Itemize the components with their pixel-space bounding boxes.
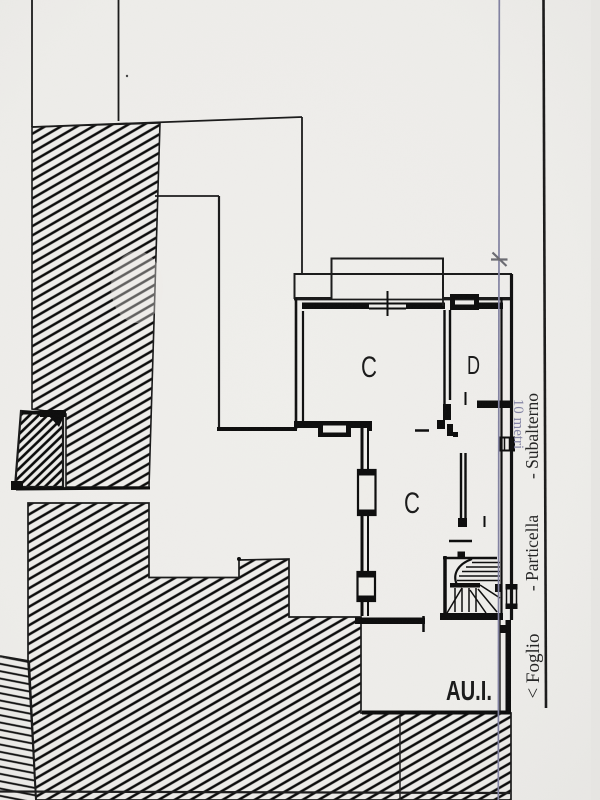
svg-text:C: C: [404, 487, 420, 520]
svg-text:AU.I.: AU.I.: [446, 675, 492, 706]
svg-text:10 metri: 10 metri: [510, 399, 526, 449]
svg-text:C: C: [361, 351, 377, 384]
svg-text:< Foglio: < Foglio: [523, 633, 544, 698]
svg-text:- Particella: - Particella: [522, 515, 542, 592]
svg-text:D: D: [467, 350, 480, 380]
